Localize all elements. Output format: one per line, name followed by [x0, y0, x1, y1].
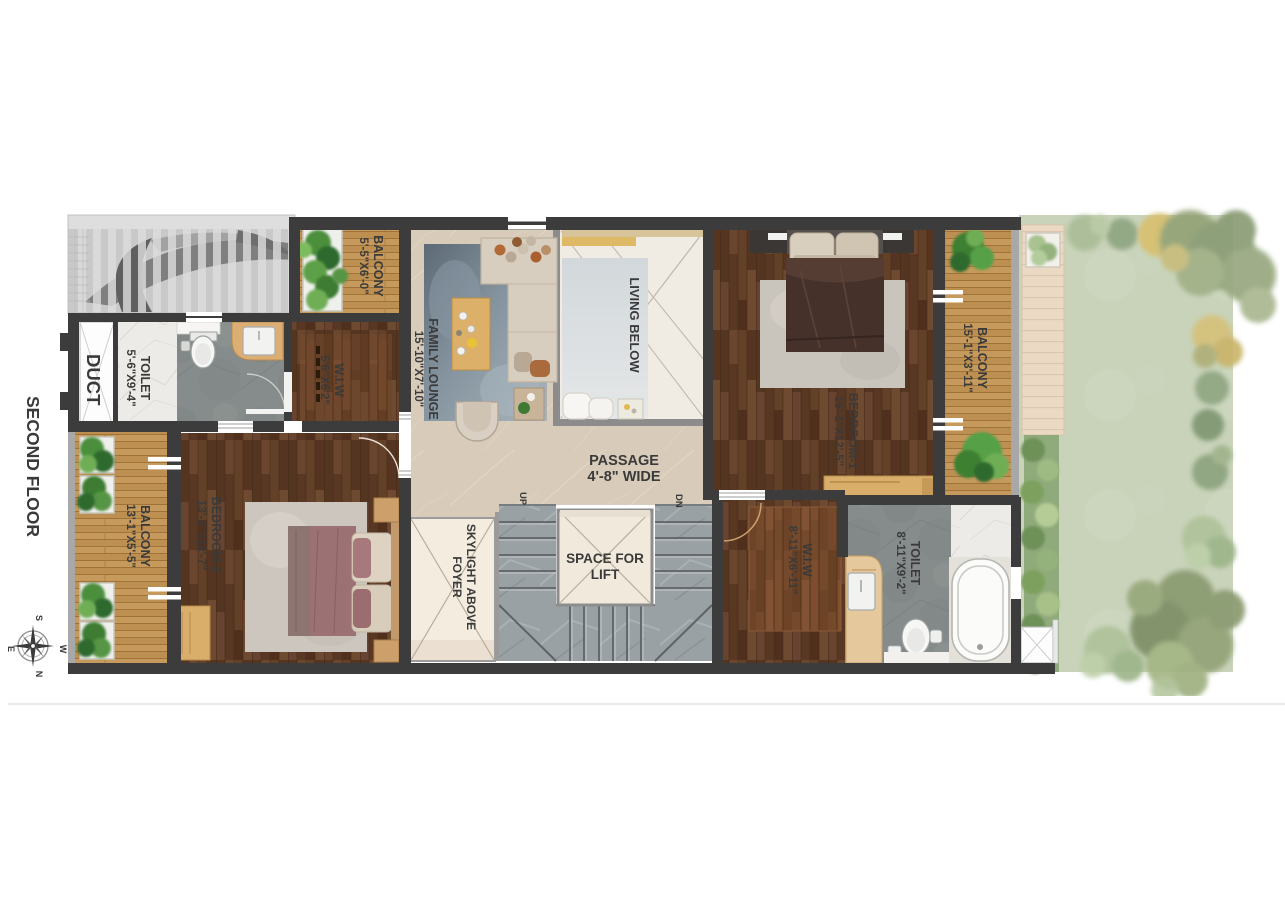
svg-text:FOYER: FOYER — [450, 556, 464, 598]
svg-text:13'-1"X5'-5": 13'-1"X5'-5" — [124, 504, 136, 568]
svg-text:PASSAGE: PASSAGE — [589, 453, 659, 469]
svg-text:BALCONY: BALCONY — [975, 327, 989, 389]
svg-text:BALCONY: BALCONY — [371, 235, 385, 297]
svg-text:DUCT: DUCT — [83, 354, 104, 406]
svg-text:5'-6"X9'-4": 5'-6"X9'-4" — [124, 349, 136, 406]
svg-text:BEDROOM-1: BEDROOM-1 — [846, 393, 860, 469]
svg-text:4'-8" WIDE: 4'-8" WIDE — [587, 469, 660, 485]
svg-text:LIVING BELOW: LIVING BELOW — [627, 277, 642, 373]
svg-text:SPACE FOR: SPACE FOR — [566, 551, 644, 566]
svg-text:LIFT: LIFT — [591, 567, 620, 582]
svg-text:5'6"X6'2": 5'6"X6'2" — [318, 355, 330, 405]
svg-text:8'-11"X9'-2": 8'-11"X9'-2" — [894, 531, 906, 594]
svg-text:N: N — [34, 671, 44, 678]
svg-text:TOILET: TOILET — [908, 541, 922, 586]
svg-text:8'-11"X6'-11": 8'-11"X6'-11" — [786, 526, 798, 595]
svg-text:SKYLIGHT ABOVE: SKYLIGHT ABOVE — [464, 524, 478, 630]
svg-text:TOILET: TOILET — [138, 356, 152, 401]
svg-text:BEDROOM-2: BEDROOM-2 — [209, 497, 223, 573]
svg-text:S: S — [34, 615, 44, 621]
svg-text:UP: UP — [517, 492, 528, 506]
svg-text:5'-5"X6'-0": 5'-5"X6'-0" — [357, 237, 369, 294]
svg-text:BALCONY: BALCONY — [138, 505, 152, 567]
svg-text:15'-1"X12'-5": 15'-1"X12'-5" — [832, 396, 844, 466]
svg-text:W.I.W: W.I.W — [332, 363, 346, 397]
svg-text:FAMILY LOUNGE: FAMILY LOUNGE — [426, 318, 440, 419]
svg-text:W.I.W: W.I.W — [800, 543, 814, 577]
svg-text:DN: DN — [673, 494, 684, 508]
svg-text:13'-3"X12'-7": 13'-3"X12'-7" — [195, 500, 207, 570]
svg-text:15'-10"X7'-10": 15'-10"X7'-10" — [412, 331, 424, 407]
svg-text:E: E — [6, 646, 16, 652]
svg-text:15'-1"X3'-11": 15'-1"X3'-11" — [961, 323, 973, 392]
svg-text:SECOND FLOOR: SECOND FLOOR — [23, 396, 43, 537]
svg-text:W: W — [58, 645, 68, 654]
